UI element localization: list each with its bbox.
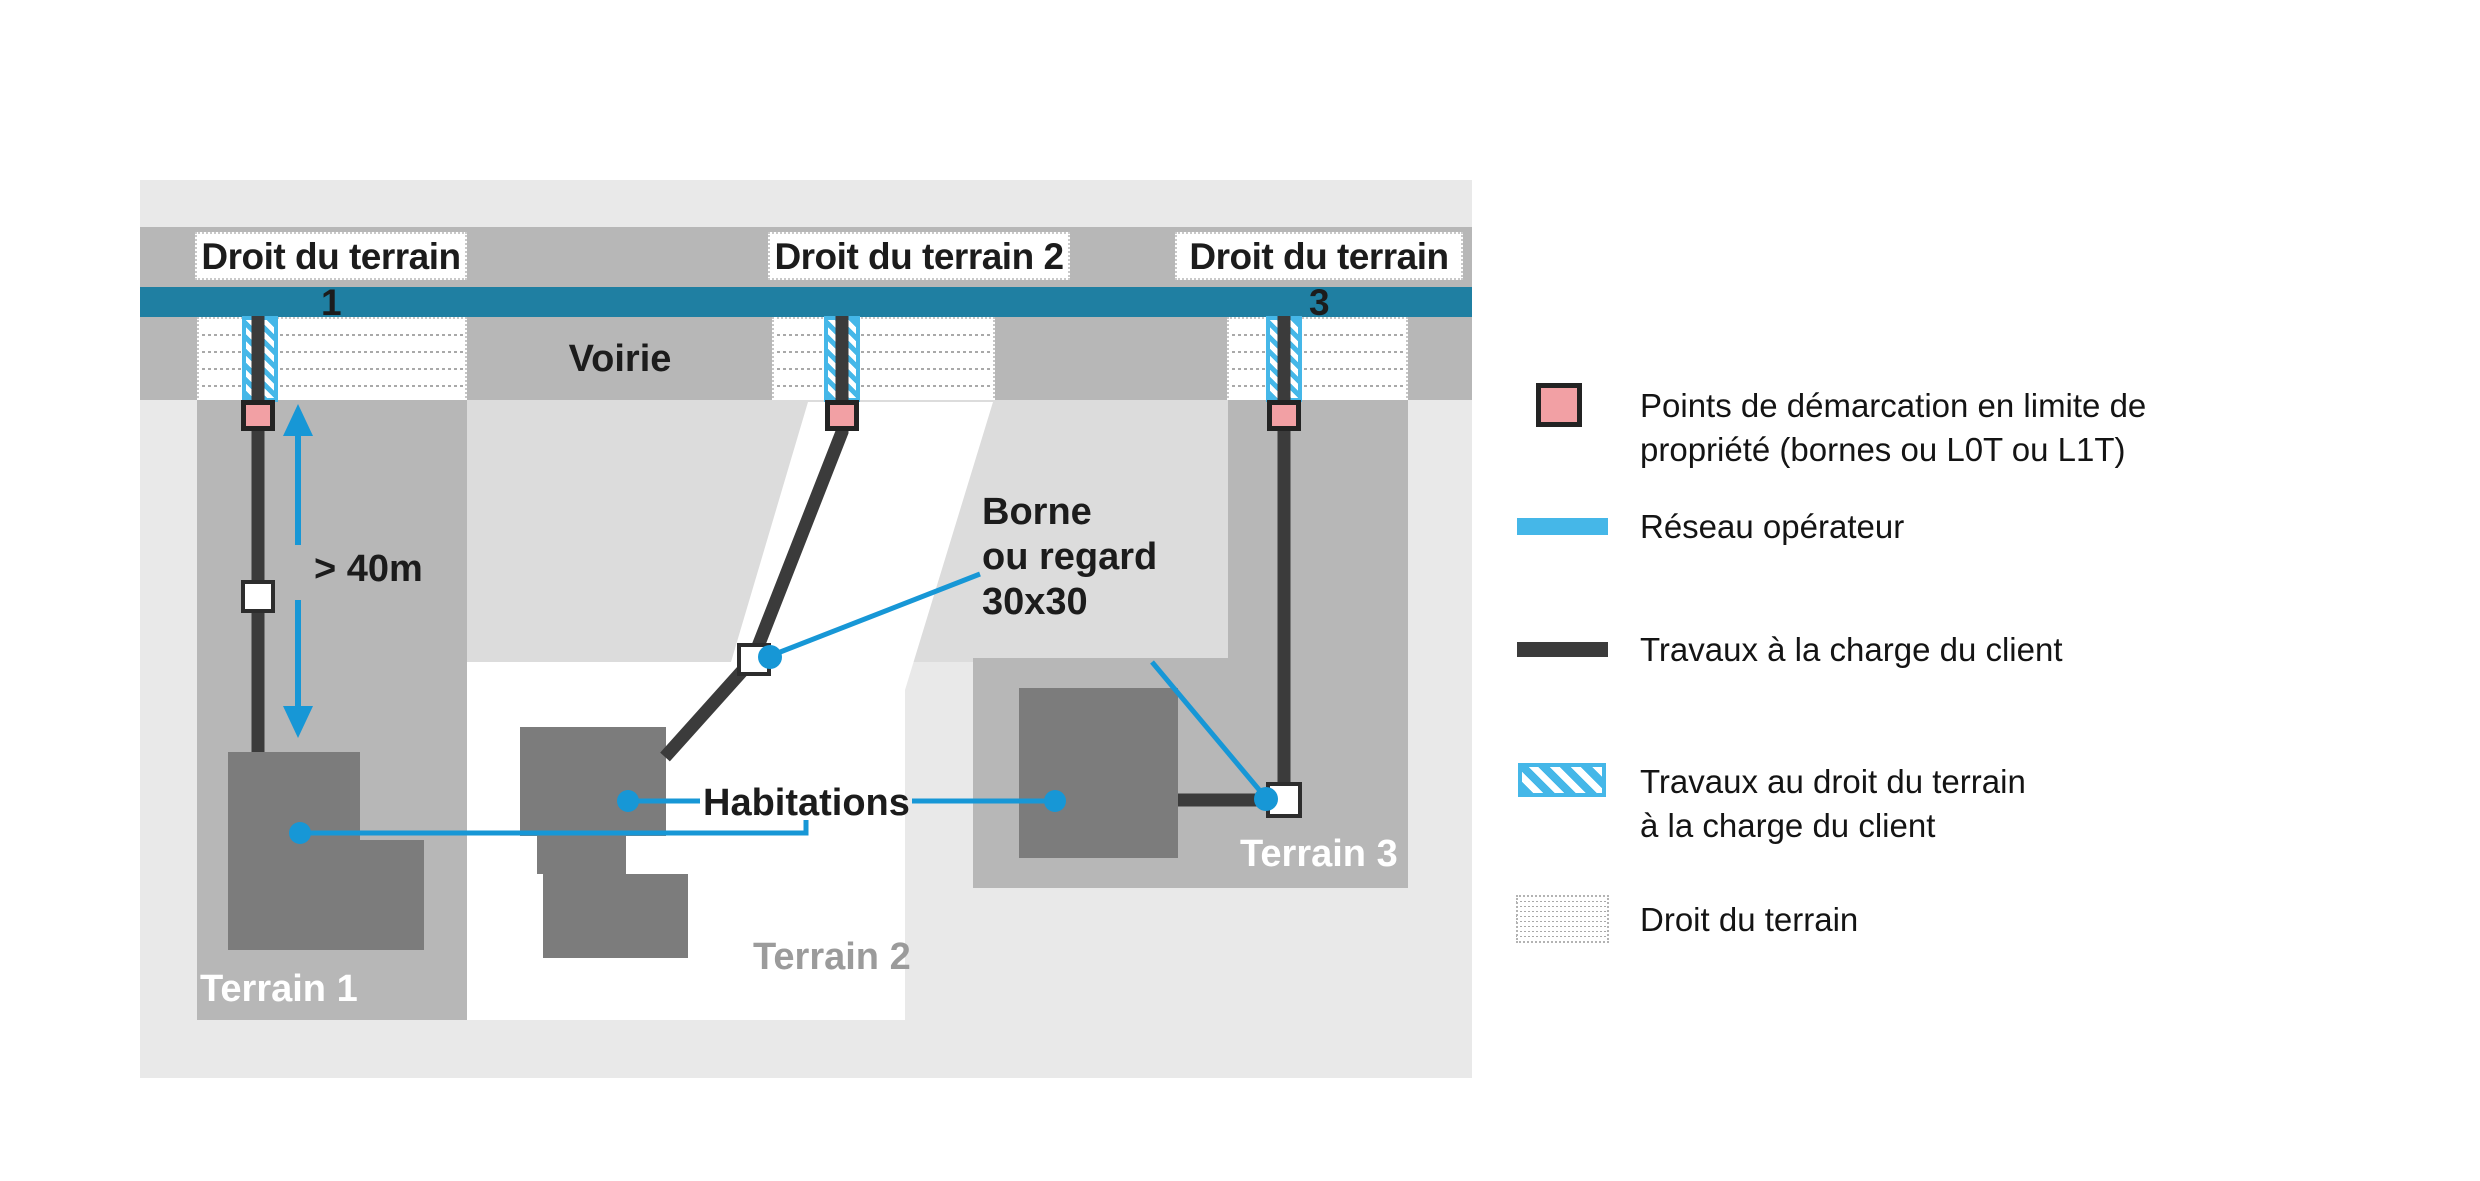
legend-swatch-reseau-operateur bbox=[1517, 518, 1608, 535]
borne-callout-terrain-3 bbox=[1152, 662, 1266, 798]
habitations-dot-terrain-3 bbox=[1044, 790, 1066, 812]
legend-swatch-droit-terrain bbox=[1516, 895, 1609, 943]
infographic-root: Droit du terrain 1 Droit du terrain 2 Dr… bbox=[0, 0, 2480, 1181]
legend-label-travaux-droit-terrain-line-1: Travaux au droit du terrain bbox=[1640, 760, 2026, 804]
legend-swatch-travaux-droit-terrain bbox=[1518, 763, 1606, 797]
legend-label-travaux-client: Travaux à la charge du client bbox=[1640, 628, 2063, 672]
borne-callout-terrain-2 bbox=[770, 574, 980, 656]
legend-label-travaux-droit-terrain: Travaux au droit du terrain à la charge … bbox=[1640, 760, 2026, 848]
legend-label-demarcation-line-1: Points de démarcation en limite de bbox=[1640, 384, 2146, 428]
borne-dot-terrain-3 bbox=[1254, 787, 1278, 811]
legend-label-reseau-operateur: Réseau opérateur bbox=[1640, 505, 1904, 549]
legend-label-demarcation-line-2: propriété (bornes ou L0T ou L1T) bbox=[1640, 428, 2146, 472]
callout-layer bbox=[0, 0, 2480, 1181]
legend-label-droit-terrain: Droit du terrain bbox=[1640, 898, 1858, 942]
legend-label-travaux-droit-terrain-line-2: à la charge du client bbox=[1640, 804, 2026, 848]
borne-dot-terrain-2 bbox=[758, 645, 782, 669]
legend-swatch-demarcation bbox=[1536, 383, 1582, 427]
habitations-dot-terrain-1 bbox=[289, 822, 311, 844]
legend-swatch-travaux-client bbox=[1517, 642, 1608, 657]
legend-label-demarcation: Points de démarcation en limite de propr… bbox=[1640, 384, 2146, 472]
habitations-callout-down-left bbox=[300, 820, 806, 833]
habitations-dot-terrain-2 bbox=[617, 790, 639, 812]
